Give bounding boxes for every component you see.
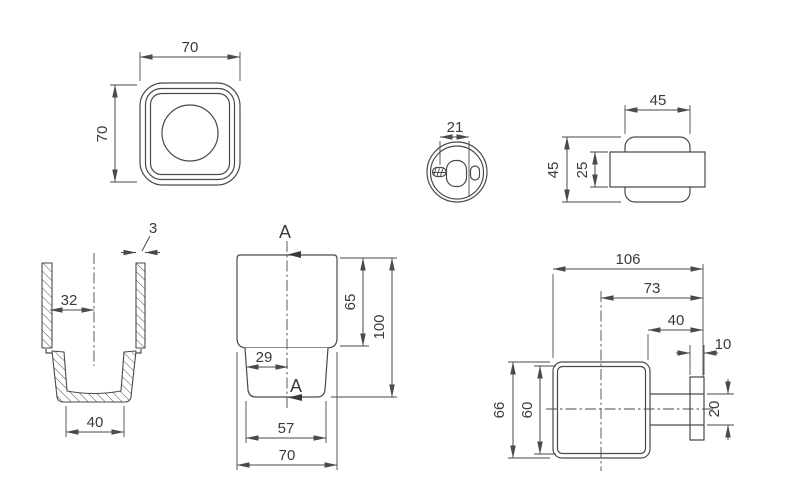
dim-plate-width: 45 [650, 92, 667, 109]
dim-slot-width: 21 [447, 119, 464, 136]
holder-arm-outline [610, 152, 705, 187]
dim-bottom-width: 40 [87, 414, 104, 431]
dim-base-width: 57 [278, 420, 295, 437]
dim-total-height: 100 [371, 314, 388, 339]
dim-body-height: 65 [342, 294, 359, 311]
dim-top-width: 70 [279, 447, 296, 464]
dim-plate-thickness: 10 [715, 336, 732, 353]
technical-drawing: 70 70 3 32 40 A A 29 [0, 0, 800, 500]
dim-center-to-wall: 32 [61, 292, 78, 309]
dim-cup-top-height: 70 [94, 126, 111, 143]
drawing-sheet: 70 70 3 32 40 A A 29 [0, 0, 800, 500]
section-wall-right [136, 263, 145, 348]
dim-inner-width: 60 [519, 402, 536, 419]
dim-arm-width: 20 [706, 401, 723, 418]
dim-arm-height: 25 [574, 162, 591, 179]
dim-face-to-wall: 40 [668, 312, 685, 329]
dim-cup-top-width: 70 [182, 39, 199, 56]
dim-outer-width: 66 [491, 402, 508, 419]
section-marker-top: A [279, 222, 291, 242]
dim-plate-height: 45 [545, 162, 562, 179]
dim-wall-thickness: 3 [149, 220, 157, 237]
dim-total-depth: 106 [615, 251, 640, 268]
dim-center-to-wall: 73 [644, 280, 661, 297]
section-wall-left [42, 263, 52, 348]
dim-center-offset: 29 [256, 349, 273, 366]
section-marker-bottom: A [290, 376, 302, 396]
